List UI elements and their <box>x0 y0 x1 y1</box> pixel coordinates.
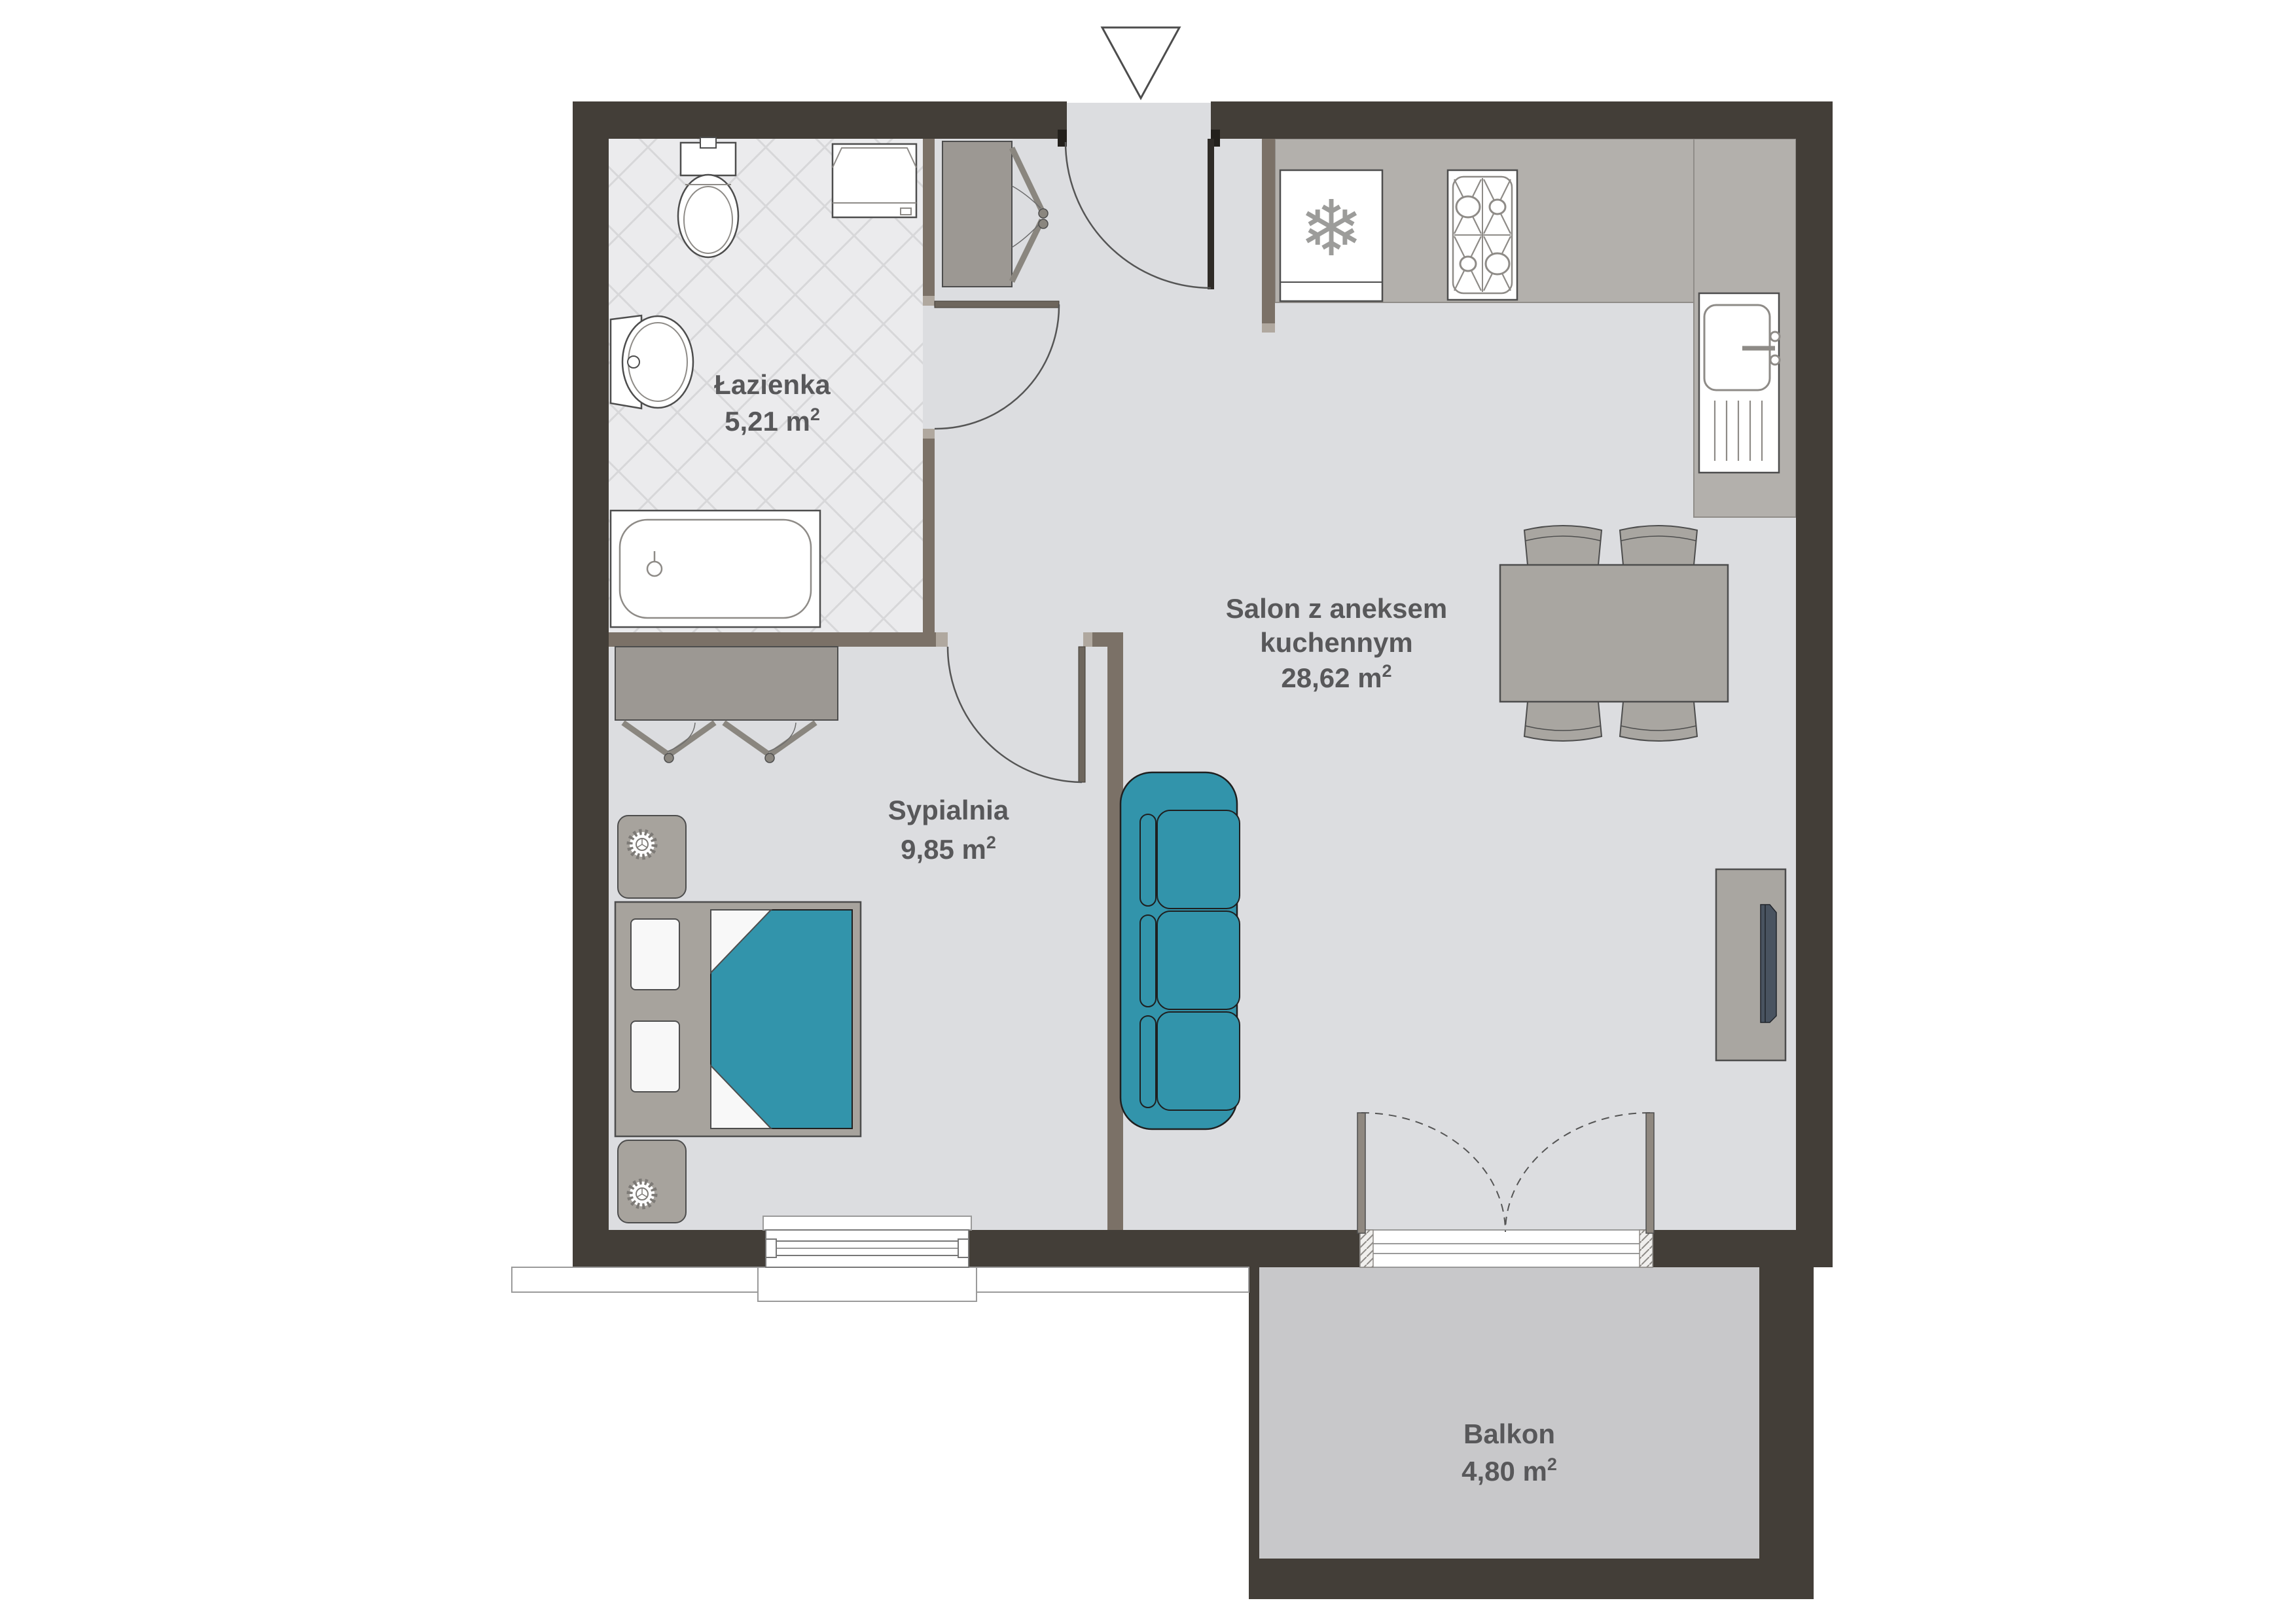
balcony-wall-left <box>1249 1267 1259 1599</box>
sofa-seat-cushion <box>1157 810 1240 909</box>
fridge: ❄ <box>1280 170 1382 301</box>
window-inner-ledge <box>763 1216 971 1230</box>
sofa-arm-cushion <box>1140 814 1156 906</box>
stove <box>1448 170 1517 300</box>
jamb-cap <box>923 296 935 306</box>
sofa-arm-cushion <box>1140 915 1156 1007</box>
balcony-floor <box>1259 1267 1759 1559</box>
wall-bottom-left-segment <box>573 1230 766 1267</box>
jamb-cap <box>923 429 935 439</box>
door-jamb <box>1360 1230 1373 1267</box>
bathtub <box>611 511 820 627</box>
chair <box>1620 702 1697 741</box>
sofa-arm-cushion <box>1140 1016 1156 1108</box>
tv-icon <box>1761 905 1776 1022</box>
balcony-door-leaf-left <box>1357 1113 1365 1233</box>
washing-machine <box>833 144 916 217</box>
bathroom-area: 5,21 m2 <box>725 405 820 437</box>
door-knob-icon <box>664 753 673 763</box>
wall-left <box>573 101 609 1267</box>
door-jamb <box>1640 1230 1653 1267</box>
jamb-cap <box>936 632 948 647</box>
living-name-line2: kuchennym <box>1260 627 1412 658</box>
toilet <box>678 137 738 257</box>
door-knob-icon <box>1039 209 1048 218</box>
pillow <box>631 919 679 990</box>
kitchen-sink <box>1699 293 1780 473</box>
sofa-seat-cushion <box>1157 911 1240 1009</box>
balcony-wall-bottom <box>1249 1559 1814 1599</box>
chair <box>1524 702 1602 741</box>
wall-top-left-segment <box>573 101 1067 139</box>
nightstand-bottom <box>618 1140 686 1223</box>
bathroom-wall-upper <box>923 139 935 296</box>
sofa <box>1121 772 1240 1129</box>
bedroom-wall-top <box>609 632 936 647</box>
wall-bottom-right-segment <box>1653 1230 1833 1267</box>
jamb-cap <box>1262 323 1275 333</box>
door-knob-icon <box>1039 219 1048 228</box>
wall-right <box>1796 101 1833 1267</box>
sofa-seat-cushion <box>1157 1012 1240 1110</box>
kitchen-wall-stub <box>1262 139 1275 323</box>
door-knob-icon <box>765 753 774 763</box>
sink-tap-icon <box>628 356 639 368</box>
bedroom-name: Sypialnia <box>888 795 1009 825</box>
window-outer-sill <box>758 1267 977 1301</box>
entry-threshold-floor <box>1067 103 1211 140</box>
burner-icon <box>1486 253 1509 274</box>
bed <box>615 902 861 1136</box>
bathtub-drain-icon <box>647 562 662 576</box>
burner-icon <box>1490 200 1505 214</box>
wall-top-right-segment <box>1211 101 1833 139</box>
living-name-line1: Salon z aneksem <box>1226 593 1447 624</box>
bathroom-sink <box>611 316 693 408</box>
burner-icon <box>1460 257 1476 271</box>
balcony-name: Balkon <box>1463 1418 1555 1449</box>
balcony-door-threshold <box>1360 1230 1653 1267</box>
snowflake-icon: ❄ <box>1299 183 1364 274</box>
pillow <box>631 1021 679 1092</box>
entry-arrow-icon <box>1102 27 1179 98</box>
burner-icon <box>1456 196 1480 217</box>
bedroom-area: 9,85 m2 <box>901 833 996 865</box>
balcony-wall-right <box>1759 1267 1814 1599</box>
floorplan-page: ❄ <box>0 0 2296 1624</box>
dining-table <box>1500 565 1728 702</box>
balcony-area: 4,80 m2 <box>1462 1454 1557 1487</box>
wall-bottom-middle-segment <box>969 1230 1360 1267</box>
chair <box>1524 526 1602 565</box>
living-area: 28,62 m2 <box>1281 661 1391 693</box>
bathroom-name: Łazienka <box>714 369 831 400</box>
bedroom-wall-top-stub <box>1092 632 1123 647</box>
balcony-door-leaf-right <box>1646 1113 1654 1233</box>
chair <box>1620 526 1697 565</box>
nightstand-top <box>618 816 686 898</box>
jamb-cap <box>1083 632 1092 647</box>
tv-stand <box>1716 869 1785 1060</box>
floorplan-canvas: ❄ <box>0 0 2296 1624</box>
bathroom-wall-lower <box>923 439 935 632</box>
